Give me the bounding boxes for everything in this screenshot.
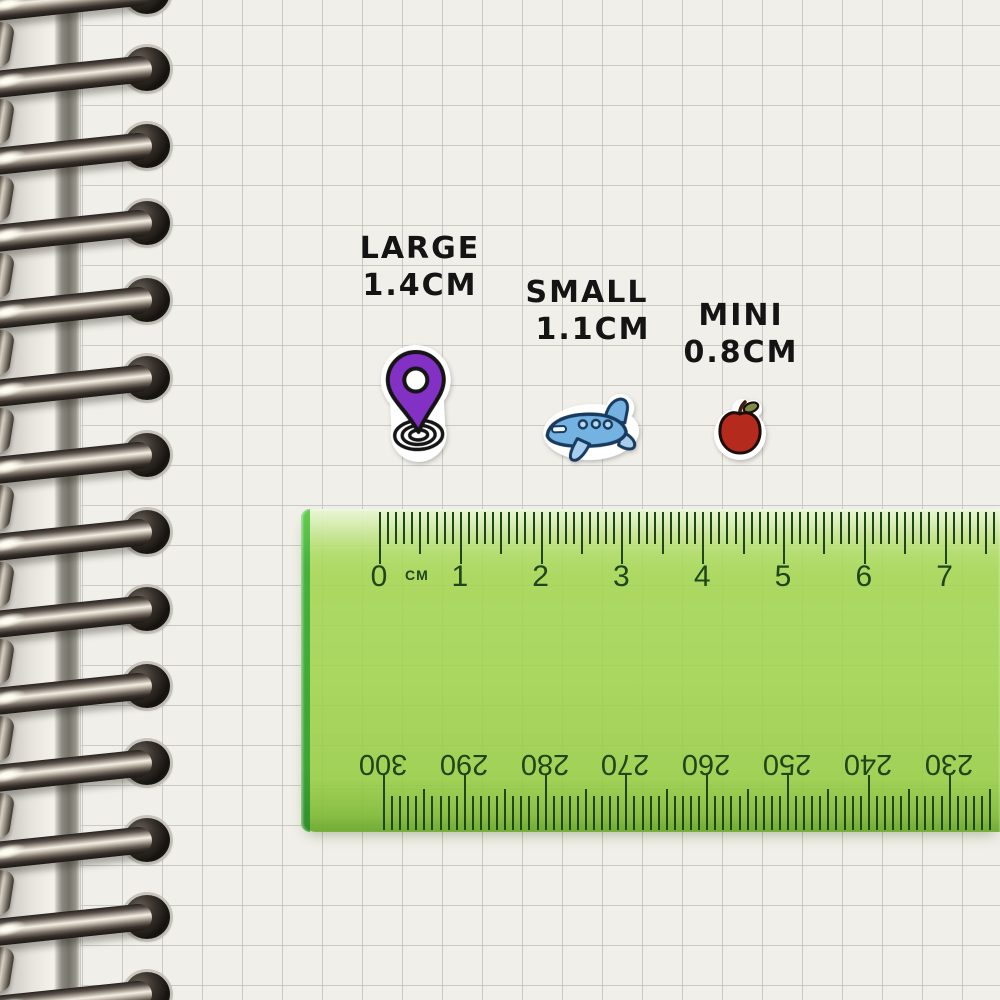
ruler-bottom-number: 280 <box>520 747 568 780</box>
spiral-coil-back-icon <box>0 174 15 222</box>
ruler-tick-icon <box>706 775 708 830</box>
spiral-coil-back-icon <box>0 714 15 762</box>
ruler-tick-icon <box>569 796 571 830</box>
ruler-tick-icon <box>860 796 862 830</box>
ruler-tick-icon <box>682 796 684 830</box>
spiral-ring-icon <box>0 132 153 177</box>
ruler-tick-icon <box>755 796 757 830</box>
ruler-tick-icon <box>448 796 450 830</box>
ruler-tick-icon <box>431 796 433 830</box>
ruler-tick-icon <box>391 796 393 830</box>
ruler-tick-icon <box>932 796 934 830</box>
ruler-tick-icon <box>666 789 668 830</box>
ruler-bottom-number: 270 <box>601 747 649 780</box>
ruler-tick-icon <box>423 789 425 830</box>
ruler-tick-icon <box>844 796 846 830</box>
ruler-tick-icon <box>827 789 829 830</box>
label-small-size: 1.1CM <box>524 311 662 348</box>
ruler-tick-icon <box>407 796 409 830</box>
ruler-bottom-number: 230 <box>924 747 972 780</box>
ruler-tick-icon <box>957 796 959 830</box>
ruler-tick-icon <box>633 796 635 830</box>
spiral-ring-icon <box>0 440 153 485</box>
ruler-tick-icon <box>698 796 700 830</box>
spiral-coil-back-icon <box>0 637 15 685</box>
ruler-tick-icon <box>811 796 813 830</box>
spiral-ring-icon <box>0 0 153 23</box>
ruler-tick-icon <box>488 796 490 830</box>
ruler-tick-icon <box>642 796 644 830</box>
ruler-tick-icon <box>585 789 587 830</box>
ruler-bottom-number: 240 <box>844 747 892 780</box>
ruler-tick-icon <box>795 796 797 830</box>
spiral-coil-back-icon <box>0 560 15 608</box>
spiral-coil-back-icon <box>0 868 15 916</box>
ruler-tick-icon <box>900 796 902 830</box>
ruler-tick-icon <box>472 796 474 830</box>
ruler-tick-icon <box>537 796 539 830</box>
ruler-tick-icon <box>415 796 417 830</box>
ruler-tick-icon <box>730 796 732 830</box>
label-small: SMALL 1.1CM <box>512 274 662 348</box>
ruler-tick-icon <box>884 796 886 830</box>
spiral-ring-icon <box>0 517 153 562</box>
spiral-coil-back-icon <box>0 483 15 531</box>
spiral-ring-icon <box>0 980 153 1000</box>
spiral-ring-icon <box>0 594 153 639</box>
ruler-tick-icon <box>440 796 442 830</box>
label-mini: MINI 0.8CM <box>671 297 811 371</box>
ruler-tick-icon <box>924 796 926 830</box>
ruler-tick-icon <box>835 796 837 830</box>
ruler: CM 01234567 300290280270260250240230 <box>301 509 1000 832</box>
apple-icon <box>720 401 760 453</box>
ruler-tick-icon <box>464 775 466 830</box>
label-mini-size: 0.8CM <box>671 334 811 371</box>
ruler-bottom-number: 300 <box>359 747 407 780</box>
spiral-binding <box>0 0 200 1000</box>
ruler-tick-icon <box>601 796 603 830</box>
ruler-tick-icon <box>553 796 555 830</box>
ruler-tick-icon <box>803 796 805 830</box>
spiral-ring-icon <box>0 749 153 794</box>
ruler-tick-icon <box>981 796 983 830</box>
ruler-tick-icon <box>520 796 522 830</box>
ruler-tick-icon <box>512 796 514 830</box>
ruler-tick-icon <box>949 775 951 830</box>
spiral-ring-icon <box>0 55 153 100</box>
airplane-sticker <box>540 392 646 464</box>
ruler-tick-icon <box>617 796 619 830</box>
ruler-tick-icon <box>690 796 692 830</box>
ruler-tick-icon <box>399 796 401 830</box>
ruler-tick-icon <box>965 796 967 830</box>
label-small-name: SMALL <box>512 274 662 311</box>
ruler-tick-icon <box>456 796 458 830</box>
spiral-ring-icon <box>0 826 153 871</box>
ruler-tick-icon <box>609 796 611 830</box>
ruler-tick-icon <box>852 796 854 830</box>
ruler-tick-icon <box>383 775 385 830</box>
apple-sticker <box>711 396 769 462</box>
ruler-tick-icon <box>496 796 498 830</box>
ruler-bottom-number: 250 <box>763 747 811 780</box>
notebook-photo: LARGE 1.4CM SMALL 1.1CM MINI 0.8CM <box>0 0 1000 1000</box>
spiral-coil-back-icon <box>0 252 15 300</box>
ruler-tick-icon <box>658 796 660 830</box>
spiral-coil-back-icon <box>0 97 15 145</box>
ruler-tick-icon <box>779 796 781 830</box>
spiral-ring-icon <box>0 286 153 331</box>
location-pin-sticker <box>378 340 456 466</box>
ruler-bottom-number: 290 <box>440 747 488 780</box>
ruler-tick-icon <box>876 796 878 830</box>
ruler-tick-icon <box>916 796 918 830</box>
label-mini-name: MINI <box>671 297 811 334</box>
grid-paper <box>78 0 1000 1000</box>
spiral-ring-icon <box>0 363 153 408</box>
label-large-name: LARGE <box>350 230 490 267</box>
spiral-ring-icon <box>0 671 153 716</box>
spiral-coil-back-icon <box>0 945 15 993</box>
ruler-tick-icon <box>528 796 530 830</box>
spiral-coil-back-icon <box>0 791 15 839</box>
ruler-tick-icon <box>722 796 724 830</box>
label-large: LARGE 1.4CM <box>350 230 490 304</box>
ruler-tick-icon <box>892 796 894 830</box>
ruler-tick-icon <box>674 796 676 830</box>
ruler-tick-icon <box>819 796 821 830</box>
ruler-tick-icon <box>625 775 627 830</box>
ruler-tick-icon <box>763 796 765 830</box>
spiral-coil-back-icon <box>0 406 15 454</box>
ruler-tick-icon <box>593 796 595 830</box>
ruler-tick-icon <box>868 775 870 830</box>
spiral-ring-icon <box>0 903 153 948</box>
ruler-tick-icon <box>739 796 741 830</box>
ruler-tick-icon <box>480 796 482 830</box>
label-large-size: 1.4CM <box>350 267 490 304</box>
spiral-ring-icon <box>0 209 153 254</box>
ruler-tick-icon <box>577 796 579 830</box>
spiral-coil-back-icon <box>0 329 15 377</box>
ruler-tick-icon <box>545 775 547 830</box>
ruler-tick-icon <box>747 789 749 830</box>
spiral-coil-back-icon <box>0 20 15 68</box>
ruler-tick-icon <box>504 789 506 830</box>
ruler-tick-icon <box>561 796 563 830</box>
ruler-tick-icon <box>941 796 943 830</box>
ruler-bottom-number: 260 <box>682 747 730 780</box>
ruler-bottom-scale: 300290280270260250240230 <box>301 509 1000 832</box>
ruler-tick-icon <box>714 796 716 830</box>
ruler-tick-icon <box>650 796 652 830</box>
ruler-tick-icon <box>908 789 910 830</box>
ruler-tick-icon <box>989 789 991 830</box>
ruler-tick-icon <box>771 796 773 830</box>
ruler-tick-icon <box>787 775 789 830</box>
ruler-tick-icon <box>973 796 975 830</box>
